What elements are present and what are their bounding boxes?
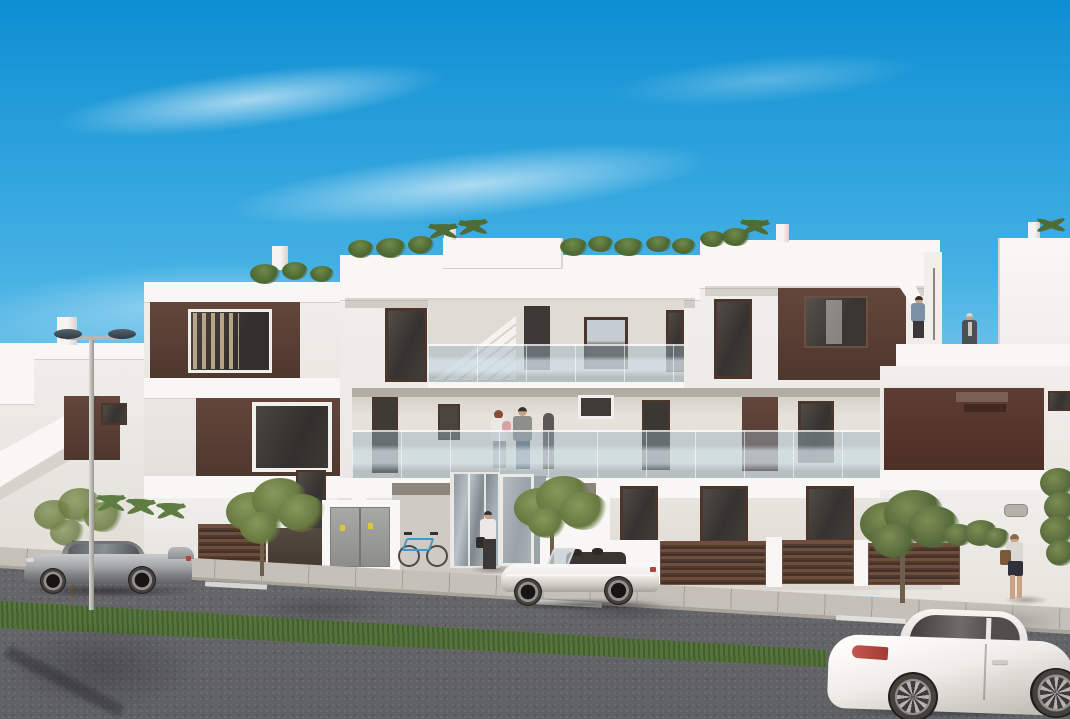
street-tree bbox=[278, 494, 326, 532]
sidewalk-woman-leg bbox=[1017, 576, 1022, 598]
left-wing-slab bbox=[144, 378, 356, 399]
terrace-man-legs bbox=[913, 321, 924, 338]
entrance-man-legs bbox=[483, 539, 496, 569]
left-wing-roof-fascia bbox=[144, 282, 356, 303]
chimney bbox=[776, 224, 789, 242]
tall-right-block bbox=[998, 238, 1070, 346]
upper-tall-window-2 bbox=[714, 299, 752, 379]
small-window bbox=[101, 403, 127, 425]
ground-window bbox=[700, 486, 748, 543]
fence-pillar bbox=[766, 537, 782, 587]
fence-pillar bbox=[854, 540, 868, 586]
convertible-taillight bbox=[650, 567, 656, 572]
convertible-mirror bbox=[556, 558, 562, 562]
street-lamp-pole bbox=[89, 336, 94, 610]
upper-tall-window bbox=[385, 308, 427, 382]
bicycle-seat bbox=[404, 532, 412, 535]
balcony-white-window bbox=[578, 395, 614, 419]
terrace-woman-head bbox=[966, 313, 973, 320]
railing-post bbox=[933, 268, 935, 340]
main-glass-balustrade bbox=[352, 430, 940, 481]
convertible-wheel bbox=[604, 576, 633, 605]
bicycle-handlebar bbox=[430, 532, 438, 535]
rooftop-palm bbox=[458, 216, 492, 238]
street-tree bbox=[528, 508, 568, 538]
panel-vent bbox=[956, 392, 1008, 402]
slatted-fence bbox=[660, 541, 766, 585]
balcony-man-head bbox=[518, 407, 527, 416]
convertible-wheel bbox=[514, 578, 542, 606]
palm-plant bbox=[96, 492, 130, 516]
ground-window bbox=[806, 486, 854, 541]
rooftop-shrub bbox=[588, 236, 614, 252]
terrace-woman-shirt bbox=[968, 322, 972, 336]
bicycle-frame bbox=[402, 538, 435, 551]
tree-shadow bbox=[0, 625, 200, 710]
architectural-render-scene bbox=[0, 0, 1070, 719]
white-coupe-wheel bbox=[888, 672, 938, 719]
rooftop-shrub bbox=[672, 238, 696, 254]
silver-coupe-wheel bbox=[40, 568, 66, 594]
rooftop-shrub bbox=[560, 238, 588, 256]
wheel-spokes bbox=[1040, 677, 1070, 709]
upper-glass-balustrade bbox=[428, 344, 684, 385]
cabinet-door-divider bbox=[359, 508, 361, 566]
rooftop-palm bbox=[740, 216, 774, 238]
terrace-man-torso bbox=[911, 303, 925, 322]
wheel-spokes bbox=[897, 681, 929, 713]
rooftop-shrub bbox=[646, 236, 672, 252]
tree-shadow bbox=[250, 595, 390, 621]
rooftop-shrub bbox=[250, 264, 280, 284]
silver-coupe-wheel bbox=[128, 566, 156, 594]
stair-bulkhead bbox=[443, 238, 563, 269]
silver-coupe-taillight bbox=[186, 556, 191, 561]
white-coupe-taillight bbox=[852, 645, 889, 660]
rooftop-shrub bbox=[282, 262, 308, 280]
window-curtains bbox=[193, 313, 239, 369]
rooftop-shrub bbox=[376, 238, 406, 258]
rooftop-shrub bbox=[614, 238, 644, 256]
street-lamp-head bbox=[54, 329, 82, 339]
rooftop-palm bbox=[1036, 214, 1066, 234]
slatted-fence bbox=[782, 540, 854, 584]
left-wing-mid-window bbox=[252, 402, 332, 472]
warning-sticker bbox=[340, 525, 345, 531]
sidewalk-woman-leg bbox=[1010, 575, 1015, 599]
sidewalk-woman-skirt bbox=[1008, 561, 1023, 576]
right-edge-window bbox=[1048, 391, 1070, 411]
rooftop-palm bbox=[428, 220, 462, 242]
ground-window bbox=[620, 486, 658, 544]
curtain-highlight bbox=[826, 300, 842, 344]
warning-sticker bbox=[368, 523, 373, 529]
rooftop-shrub bbox=[310, 266, 334, 282]
edge-bush bbox=[1046, 540, 1070, 566]
silver-coupe-headlight bbox=[26, 558, 34, 562]
convertible-crease bbox=[506, 574, 654, 576]
panel-vent bbox=[964, 404, 1006, 412]
street-tree bbox=[240, 512, 284, 544]
balcony-ceiling-shadow bbox=[352, 388, 940, 397]
palm-plant bbox=[126, 496, 160, 520]
entrance-man-head bbox=[484, 511, 492, 519]
palm-plant bbox=[156, 500, 190, 524]
left-balcony-parapet bbox=[0, 358, 34, 405]
white-coupe-door-handle bbox=[992, 660, 1008, 664]
street-lamp-head bbox=[108, 329, 136, 339]
rooftop-shrub bbox=[348, 240, 374, 258]
convertible-headrest bbox=[592, 548, 603, 555]
wall-plaque bbox=[1004, 504, 1028, 517]
street-tree bbox=[872, 524, 918, 558]
